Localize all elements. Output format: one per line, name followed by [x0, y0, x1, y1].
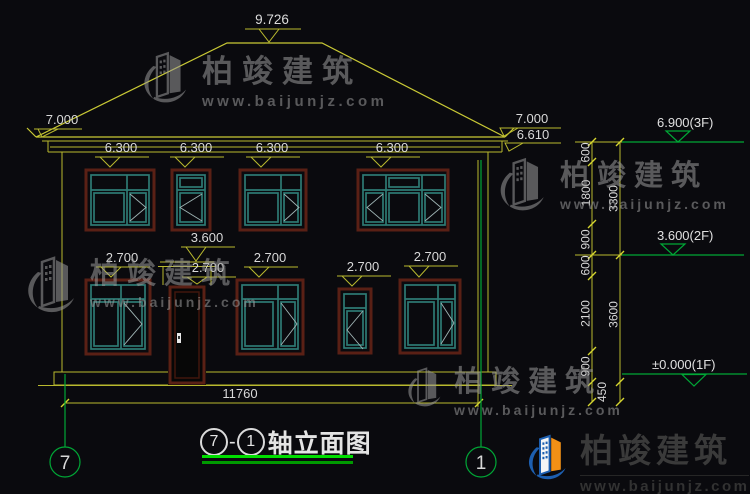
spot-markers-2f-windows: 6.300 6.300 6.300 6.300 [95, 140, 420, 167]
title-axis-start-bubble: 7 [200, 428, 228, 456]
level-marker-3f: 6.900(3F) [622, 115, 744, 142]
window-top-label-1f-1: 2.700 [106, 250, 139, 265]
chain-dim-1800: 1800 [579, 179, 593, 206]
chain-dim-900b: 900 [579, 356, 593, 376]
grid-axis-right: 1 [466, 160, 496, 477]
spot-marker-eave-left: 7.000 [34, 112, 82, 137]
level-marker-1f: ±0.000(1F) [622, 357, 747, 386]
level-label-2f: 3.600(2F) [657, 228, 713, 243]
title-underline-primary [202, 455, 353, 458]
roof [27, 43, 514, 152]
window-top-label-2f-3: 6.300 [256, 140, 289, 155]
overall-width-dimension: 11760 [61, 386, 483, 407]
eave-right-top-label: 7.000 [516, 111, 549, 126]
eave-right-bottom-label: 6.610 [517, 127, 550, 142]
title-underline-secondary [202, 461, 353, 464]
canopy-top-label: 3.600 [191, 230, 224, 245]
brand-logo-url: www.baijunjz.com [580, 475, 749, 494]
window-top-label-2f-4: 6.300 [376, 140, 409, 155]
grid-axis-left: 7 [50, 374, 80, 477]
eave-left-elevation-label: 7.000 [46, 112, 79, 127]
door-keyhole [178, 336, 180, 339]
title-separator: - [229, 431, 236, 454]
spot-marker-canopy: 3.600 [181, 230, 235, 261]
window-2f-3 [240, 170, 306, 230]
window-top-label-1f-2: 2.700 [254, 250, 287, 265]
eave-tips [27, 128, 514, 137]
chain-dim-600a: 600 [579, 142, 593, 162]
plinth [54, 372, 496, 385]
door-top-label: 2.700 [192, 260, 225, 275]
window-1f-1 [86, 280, 150, 354]
cad-elevation-drawing: 9.726 7.000 7.000 6.610 6.300 6.300 6.30… [0, 0, 750, 494]
dimension-chain-right: 600 1800 900 600 2100 900 450 3300 3600 [478, 138, 634, 407]
window-top-label-2f-1: 6.300 [105, 140, 138, 155]
window-top-label-1f-4: 2.700 [414, 249, 447, 264]
window-1f-2 [237, 280, 303, 354]
brand-logo: 柏竣建筑 www.baijunjz.com [524, 424, 749, 494]
spot-marker-ridge: 9.726 [245, 12, 301, 42]
chain-dim-2100: 2100 [579, 300, 593, 327]
window-top-label-2f-2: 6.300 [180, 140, 213, 155]
chain-dim-450: 450 [595, 382, 609, 402]
grid-bubble-right-label: 1 [476, 453, 487, 474]
window-1f-4 [400, 280, 460, 353]
brand-logo-icon [524, 424, 572, 488]
window-top-label-1f-3: 2.700 [347, 259, 380, 274]
spot-marker-eave-right: 7.000 6.610 [500, 111, 561, 151]
ridge-elevation-label: 9.726 [255, 12, 289, 27]
grid-bubble-left-label: 7 [60, 453, 71, 474]
window-2f-4 [358, 170, 448, 230]
chain-dim-3300: 3300 [607, 185, 621, 212]
title-axis-end-bubble: 1 [237, 428, 265, 456]
window-2f-2 [172, 170, 210, 230]
chain-dim-600b: 600 [579, 255, 593, 275]
title-axis-start: 7 [210, 433, 219, 451]
brand-logo-text: 柏竣建筑 [580, 424, 749, 472]
entry-door [158, 262, 216, 385]
chain-dim-900a: 900 [579, 229, 593, 249]
level-marker-2f: 3.600(2F) [622, 228, 744, 255]
roof-tiles [36, 43, 505, 137]
drawing-canvas: 9.726 7.000 7.000 6.610 6.300 6.300 6.30… [0, 0, 750, 494]
door-opening [168, 285, 206, 385]
walls [38, 152, 512, 386]
overall-width-label: 11760 [222, 386, 257, 401]
level-label-3f: 6.900(3F) [657, 115, 713, 130]
title-axis-end: 1 [246, 433, 255, 451]
window-1f-3 [339, 289, 371, 353]
window-2f-1 [86, 170, 154, 230]
chain-dim-3600: 3600 [607, 301, 621, 328]
level-label-1f: ±0.000(1F) [652, 357, 716, 372]
